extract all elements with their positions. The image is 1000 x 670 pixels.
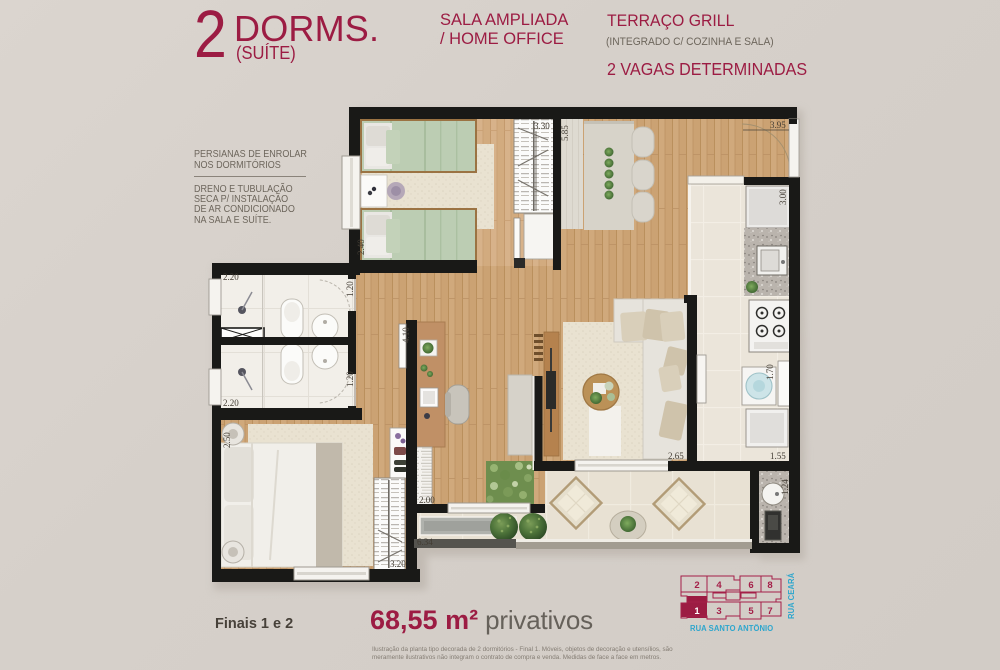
svg-text:4.10: 4.10 [401,327,411,343]
svg-text:5.85: 5.85 [560,125,570,141]
svg-text:2.00: 2.00 [419,495,435,505]
svg-text:4: 4 [716,580,722,591]
svg-text:1.20: 1.20 [345,281,355,297]
svg-text:2.50: 2.50 [222,432,232,448]
svg-text:6: 6 [748,580,753,591]
svg-text:1.55: 1.55 [770,451,786,461]
svg-text:1: 1 [694,606,700,617]
svg-text:2.20: 2.20 [223,398,239,408]
svg-text:3.95: 3.95 [770,120,786,130]
svg-text:3: 3 [716,606,721,617]
svg-text:2.20: 2.20 [223,272,239,282]
svg-text:2: 2 [694,580,699,591]
svg-text:2.65: 2.65 [668,451,684,461]
svg-text:3.00: 3.00 [778,189,788,205]
svg-text:1.70: 1.70 [765,364,775,380]
svg-text:1.24: 1.24 [780,479,790,495]
svg-text:8: 8 [767,580,772,591]
svg-text:3.30: 3.30 [534,121,550,131]
svg-text:1.20: 1.20 [345,371,355,387]
svg-text:2.40: 2.40 [356,239,366,255]
svg-text:3.20: 3.20 [390,559,406,569]
svg-text:5: 5 [748,606,754,617]
svg-text:7: 7 [767,606,772,617]
svg-text:6.34: 6.34 [417,537,433,547]
